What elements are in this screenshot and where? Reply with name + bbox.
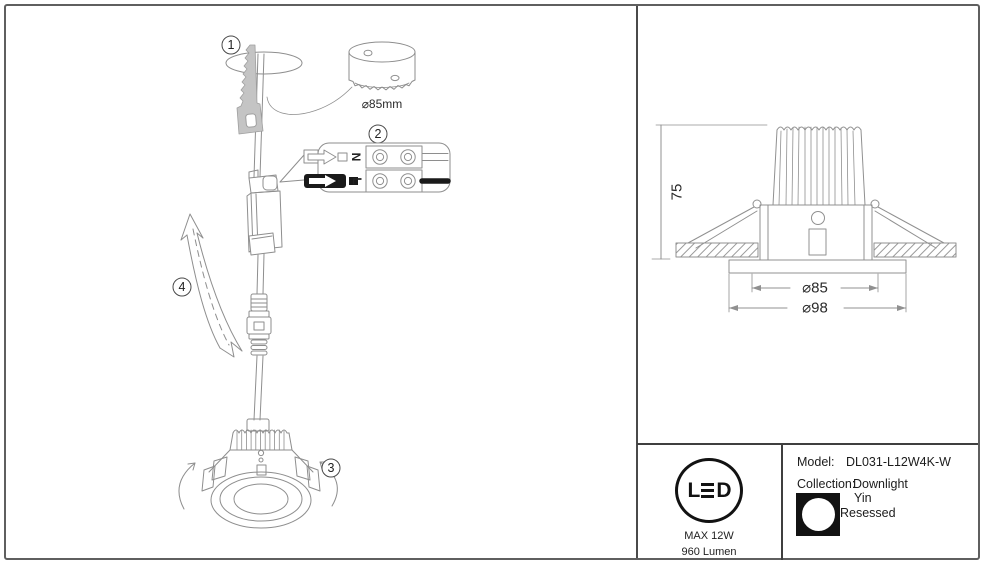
cutout-dim-label: ⌀85 xyxy=(802,280,828,297)
hole-saw-detail: ⌀85mm xyxy=(267,42,415,114)
cable-connector xyxy=(247,294,271,420)
step-1-number: 1 xyxy=(228,38,235,52)
led-logo-letter-l: L xyxy=(688,479,700,503)
fixture-body xyxy=(760,205,872,260)
brand-logo-icon xyxy=(796,493,840,536)
brand-name-line1: Yin xyxy=(854,491,872,505)
brand-logo-dot xyxy=(802,498,835,531)
lens xyxy=(234,484,288,514)
ceiling-right xyxy=(874,243,956,257)
cutout-dimension: ⌀85 xyxy=(752,274,878,297)
collection-value: Downlight xyxy=(853,477,908,491)
step-1-cut-hole: 1 xyxy=(222,36,302,177)
brand-name-line2: Resessed xyxy=(840,506,896,520)
downlight-fixture: 3 xyxy=(179,419,340,528)
fixture-section-view xyxy=(676,127,956,273)
trim-flange xyxy=(729,260,906,273)
height-dimension: 75 xyxy=(652,125,767,259)
led-rating-cell: L D MAX 12W 960 Lumen xyxy=(637,445,783,560)
installation-diagram: 1 ⌀85mm 2 xyxy=(173,36,450,528)
instruction-sheet: 1 ⌀85mm 2 xyxy=(0,0,984,564)
model-value: DL031-L12W4K-W xyxy=(846,455,951,469)
step-4-number: 4 xyxy=(179,280,186,294)
terminal-l-label: L xyxy=(350,177,364,184)
step-2-number: 2 xyxy=(375,127,382,141)
model-info-cell: Model: DL031-L12W4K-W Collection: Downli… xyxy=(783,445,978,560)
terminal-n-label: N xyxy=(349,153,363,162)
lumen-label: 960 Lumen xyxy=(681,545,736,560)
heatsink-profile xyxy=(777,127,861,130)
hole-saw-size-label: ⌀85mm xyxy=(362,97,403,111)
hole-saw-leader-line xyxy=(267,87,352,114)
led-driver-box xyxy=(247,170,282,294)
led-logo-letter-d: D xyxy=(716,479,730,503)
product-info-panel: L D MAX 12W 960 Lumen Model: DL031-L12W4… xyxy=(637,443,978,560)
saw-handle-slot xyxy=(245,114,256,128)
step-4-push-arrow: 4 xyxy=(173,214,242,357)
led-logo: L D xyxy=(675,458,743,523)
step-2-wiring: 2 N L xyxy=(280,125,450,192)
max-power-label: MAX 12W xyxy=(681,529,736,544)
ceiling-left xyxy=(676,243,758,257)
model-label: Model: xyxy=(797,455,846,469)
outer-dim-label: ⌀98 xyxy=(802,300,828,317)
trim-ring-outer xyxy=(211,472,311,528)
led-e-bars-icon xyxy=(701,483,714,499)
collection-label: Collection: xyxy=(797,477,853,491)
dimension-drawing: 75 xyxy=(652,125,956,317)
step-3-number: 3 xyxy=(328,461,335,475)
height-dim-label: 75 xyxy=(669,184,686,201)
